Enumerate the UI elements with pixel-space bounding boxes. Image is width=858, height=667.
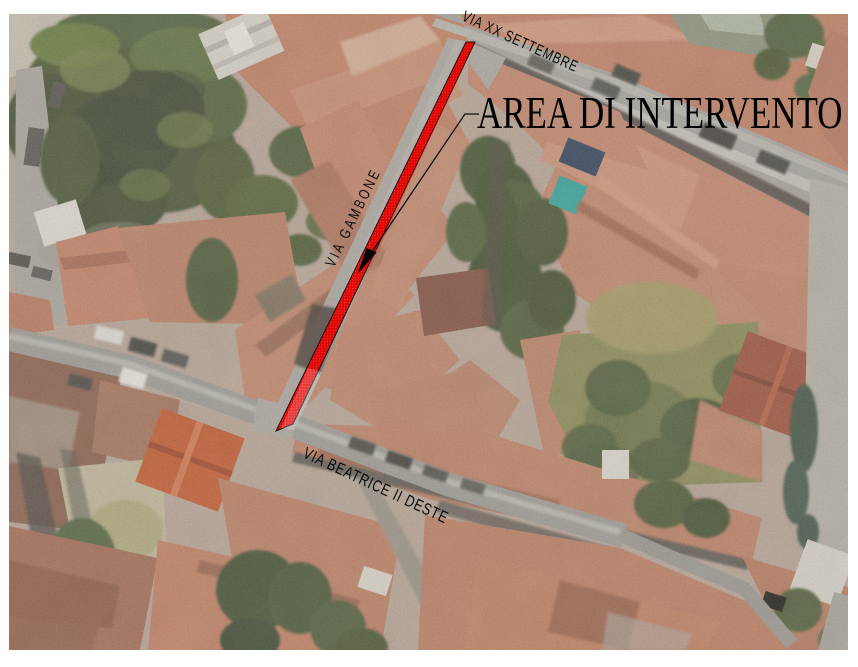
svg-text:AREA DI INTERVENTO: AREA DI INTERVENTO: [477, 87, 842, 138]
